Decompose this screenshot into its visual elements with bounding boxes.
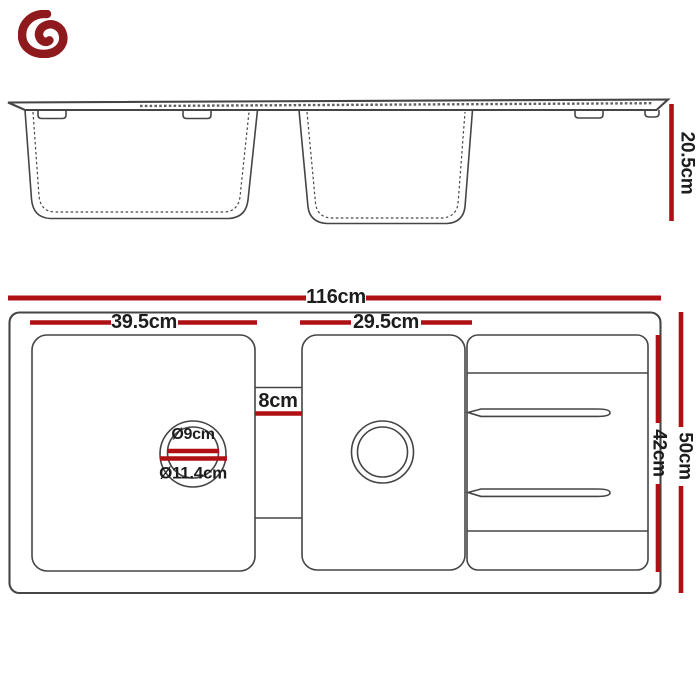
- dim-label-inner-depth: 42cm: [650, 429, 669, 476]
- sink-drawing: [0, 0, 700, 700]
- dim-label-divider-width: 8cm: [258, 391, 297, 411]
- product-dimension-diagram: 20.5cm 116cm 39.5cm 29.5cm 8cm Ø9cm Ø11.…: [0, 0, 700, 700]
- dim-label-side-depth: 20.5cm: [678, 132, 697, 195]
- dim-label-overall-width: 116cm: [306, 287, 366, 307]
- dim-label-drain-hole-diameter: Ø9cm: [171, 427, 214, 443]
- dim-label-left-bowl-width: 39.5cm: [111, 312, 177, 332]
- dim-label-right-bowl-width: 29.5cm: [353, 312, 419, 332]
- side-view-drawing: [8, 100, 672, 224]
- top-view-drawing: [8, 298, 681, 593]
- dim-label-drain-flange-diameter: Ø11.4cm: [159, 465, 227, 482]
- dim-label-overall-depth: 50cm: [676, 432, 695, 479]
